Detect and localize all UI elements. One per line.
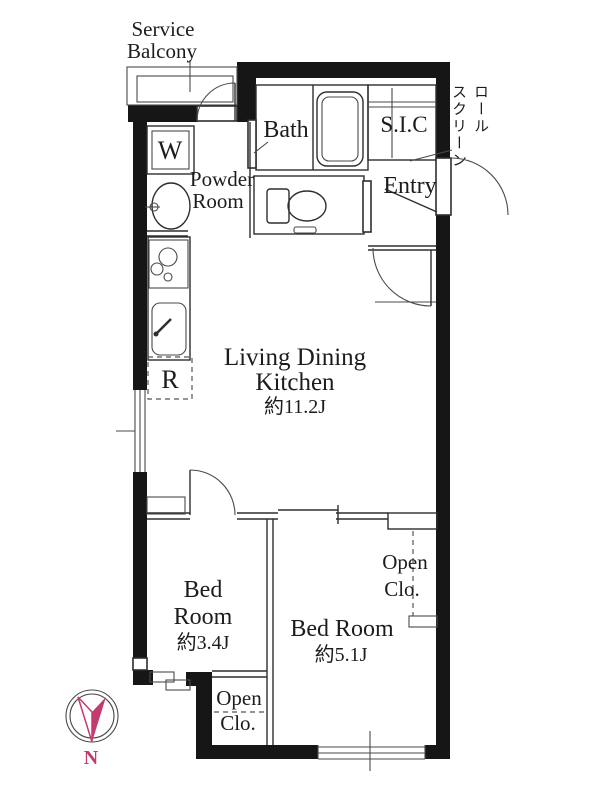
- wall-bottom-right-corner: [425, 745, 450, 759]
- sic-label: S.I.C: [380, 112, 427, 137]
- bedroom51-label-line1: Bed Room: [290, 616, 394, 642]
- washing-machine-label: W: [158, 136, 183, 165]
- closet34-label-line2: Clo.: [220, 711, 256, 735]
- powder-room-label-line1: Powder: [190, 167, 254, 191]
- ldk-label-line2: Kitchen: [255, 369, 335, 396]
- front-door-leaf: [436, 158, 451, 215]
- closet51-label-line1: Open: [382, 550, 428, 574]
- service-balcony-label-line1: Service: [132, 17, 195, 41]
- ldk-label-line1: Living Dining: [224, 344, 367, 371]
- bath-door: [248, 120, 256, 168]
- closet34-label-line1: Open: [216, 686, 262, 710]
- floor-plan-page: Service Balcony Bath S.I.C ロール スクリーン: [0, 0, 600, 800]
- wall-right-upper: [436, 62, 450, 158]
- ldk-area-label: 約11.2J: [264, 395, 326, 418]
- service-balcony-label-line2: Balcony: [127, 39, 197, 63]
- wall-right-lower: [436, 215, 450, 747]
- bedroom51-area-label: 約5.1J: [315, 643, 368, 666]
- bedroom34-area-label: 約3.4J: [177, 631, 230, 654]
- bedroom34-label-line1: Bed: [184, 577, 223, 603]
- wall-column-balcony: [237, 62, 256, 122]
- wall-bottom-mid: [200, 745, 318, 759]
- bedroom34-label-line2: Room: [174, 604, 233, 630]
- bath-label: Bath: [263, 117, 308, 143]
- wall-left-notch: [133, 658, 147, 670]
- roll-screen-text-left: スクリーン: [450, 84, 466, 169]
- compass-north-label: N: [84, 747, 99, 769]
- powder-room-label-line2: Room: [192, 189, 243, 213]
- wall-left-lower: [133, 472, 147, 658]
- refrigerator-label: R: [161, 365, 179, 394]
- toilet-door: [363, 181, 371, 232]
- wall-under-balcony: [128, 105, 198, 122]
- balcony-door-threshold: [197, 106, 237, 121]
- wall-left-upper: [133, 120, 147, 390]
- entry-label: Entry: [383, 173, 436, 199]
- roll-screen-text-right: ロール: [472, 84, 488, 135]
- closet51-label-line2: Clo.: [384, 577, 420, 601]
- sink-faucet-base: [154, 332, 159, 337]
- wall-top: [238, 62, 450, 78]
- floor-plan-drawing: Service Balcony Bath S.I.C ロール スクリーン: [0, 0, 600, 800]
